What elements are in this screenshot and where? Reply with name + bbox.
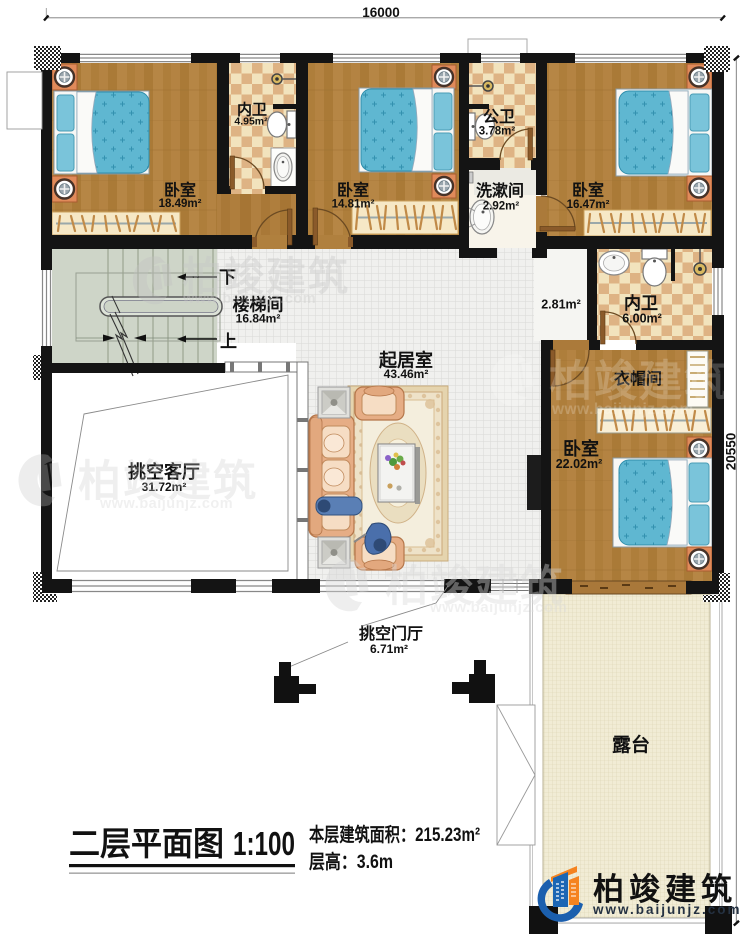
svg-text:柏竣建筑: 柏竣建筑 — [549, 358, 729, 406]
svg-text:洗漱间: 洗漱间 — [476, 181, 524, 200]
svg-text:18.49m²: 18.49m² — [159, 198, 202, 210]
svg-text:www.baijunjz.com: www.baijunjz.com — [182, 291, 316, 307]
svg-text:露台: 露台 — [612, 733, 650, 756]
svg-text:16.47m²: 16.47m² — [567, 199, 610, 211]
svg-text:上: 上 — [220, 332, 237, 351]
svg-text:卧室: 卧室 — [572, 181, 604, 200]
svg-text:6.00m²: 6.00m² — [622, 312, 662, 326]
svg-text:本层建筑面积：215.23m²: 本层建筑面积：215.23m² — [309, 823, 480, 846]
svg-text:2.81m²: 2.81m² — [541, 298, 581, 312]
svg-text:16000: 16000 — [362, 5, 400, 20]
svg-text:公卫: 公卫 — [483, 108, 515, 126]
svg-text:3.78m²: 3.78m² — [479, 126, 516, 138]
svg-text:层高：3.6m: 层高：3.6m — [309, 850, 393, 873]
svg-text:2.92m²: 2.92m² — [483, 201, 520, 213]
svg-text:卧室: 卧室 — [164, 181, 196, 200]
svg-text:14.81m²: 14.81m² — [332, 199, 375, 211]
svg-text:4.95m²: 4.95m² — [234, 116, 268, 128]
svg-text:16.84m²: 16.84m² — [236, 312, 281, 326]
svg-text:卧室: 卧室 — [563, 438, 599, 459]
svg-text:www.baijunjz.com: www.baijunjz.com — [99, 496, 233, 512]
svg-text:内卫: 内卫 — [624, 293, 658, 313]
svg-text:20550: 20550 — [724, 433, 739, 471]
svg-text:22.02m²: 22.02m² — [556, 457, 603, 471]
svg-text:1:100: 1:100 — [233, 825, 295, 862]
svg-text:6.71m²: 6.71m² — [370, 642, 408, 656]
svg-text:www.baijunjz.com: www.baijunjz.com — [429, 599, 567, 616]
svg-text:www.baijunjz.com: www.baijunjz.com — [592, 902, 742, 917]
svg-text:43.46m²: 43.46m² — [384, 367, 429, 381]
svg-text:挑空门厅: 挑空门厅 — [359, 624, 423, 643]
svg-text:二层平面图: 二层平面图 — [69, 825, 224, 862]
svg-text:卧室: 卧室 — [337, 181, 369, 200]
svg-text:www.baijunjz.com: www.baijunjz.com — [551, 401, 694, 418]
